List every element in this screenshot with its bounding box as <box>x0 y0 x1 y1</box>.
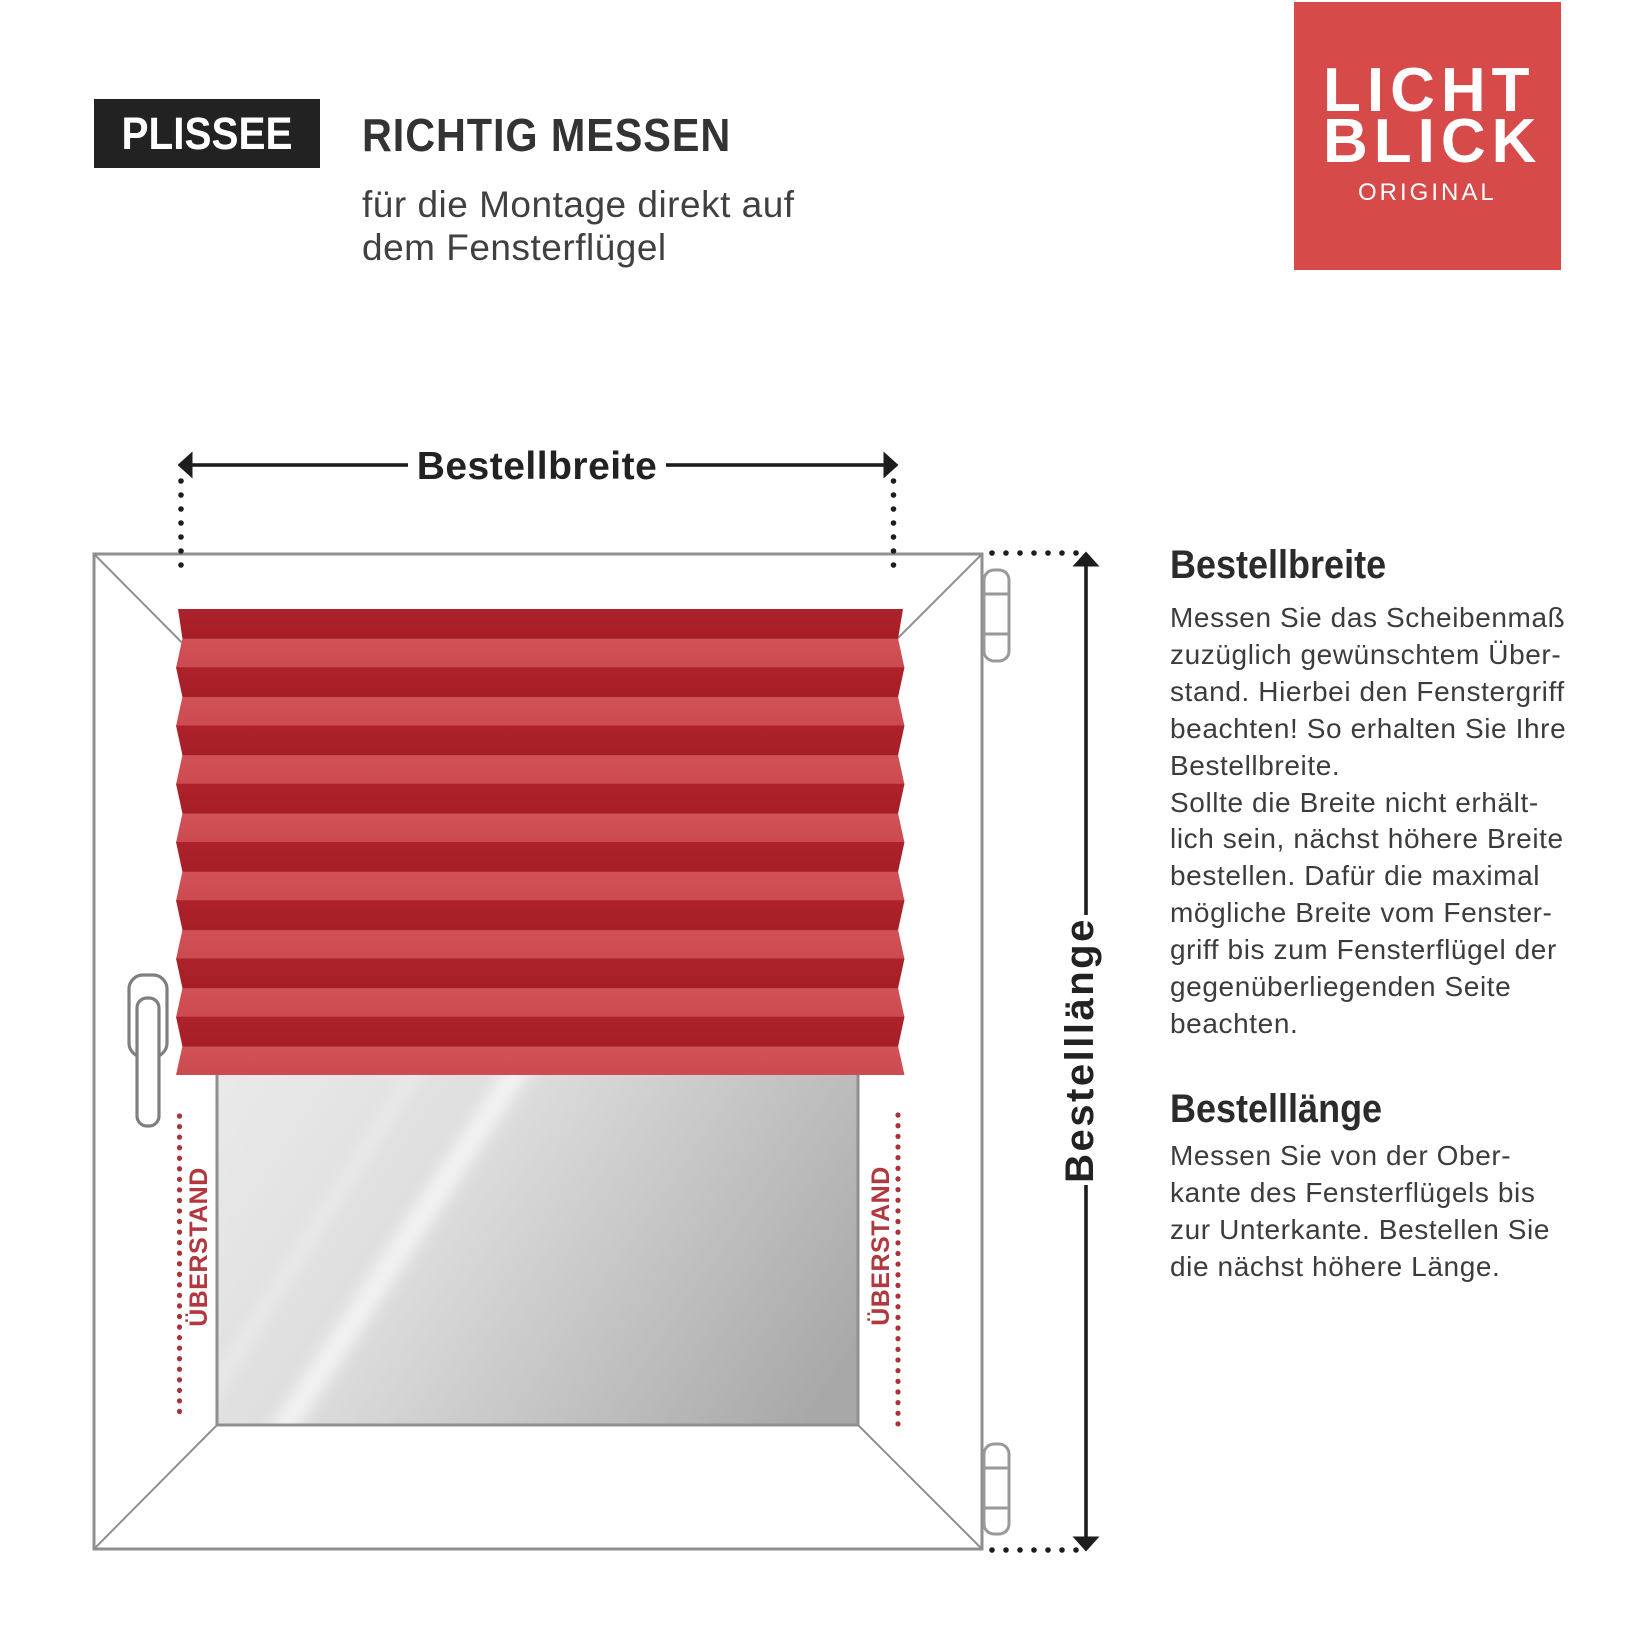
svg-text:ÜBERSTAND: ÜBERSTAND <box>866 1166 895 1326</box>
svg-text:Bestelllänge: Bestelllänge <box>1058 917 1102 1183</box>
svg-text:ÜBERSTAND: ÜBERSTAND <box>184 1167 213 1327</box>
svg-text:Bestellbreite: Bestellbreite <box>417 445 658 488</box>
